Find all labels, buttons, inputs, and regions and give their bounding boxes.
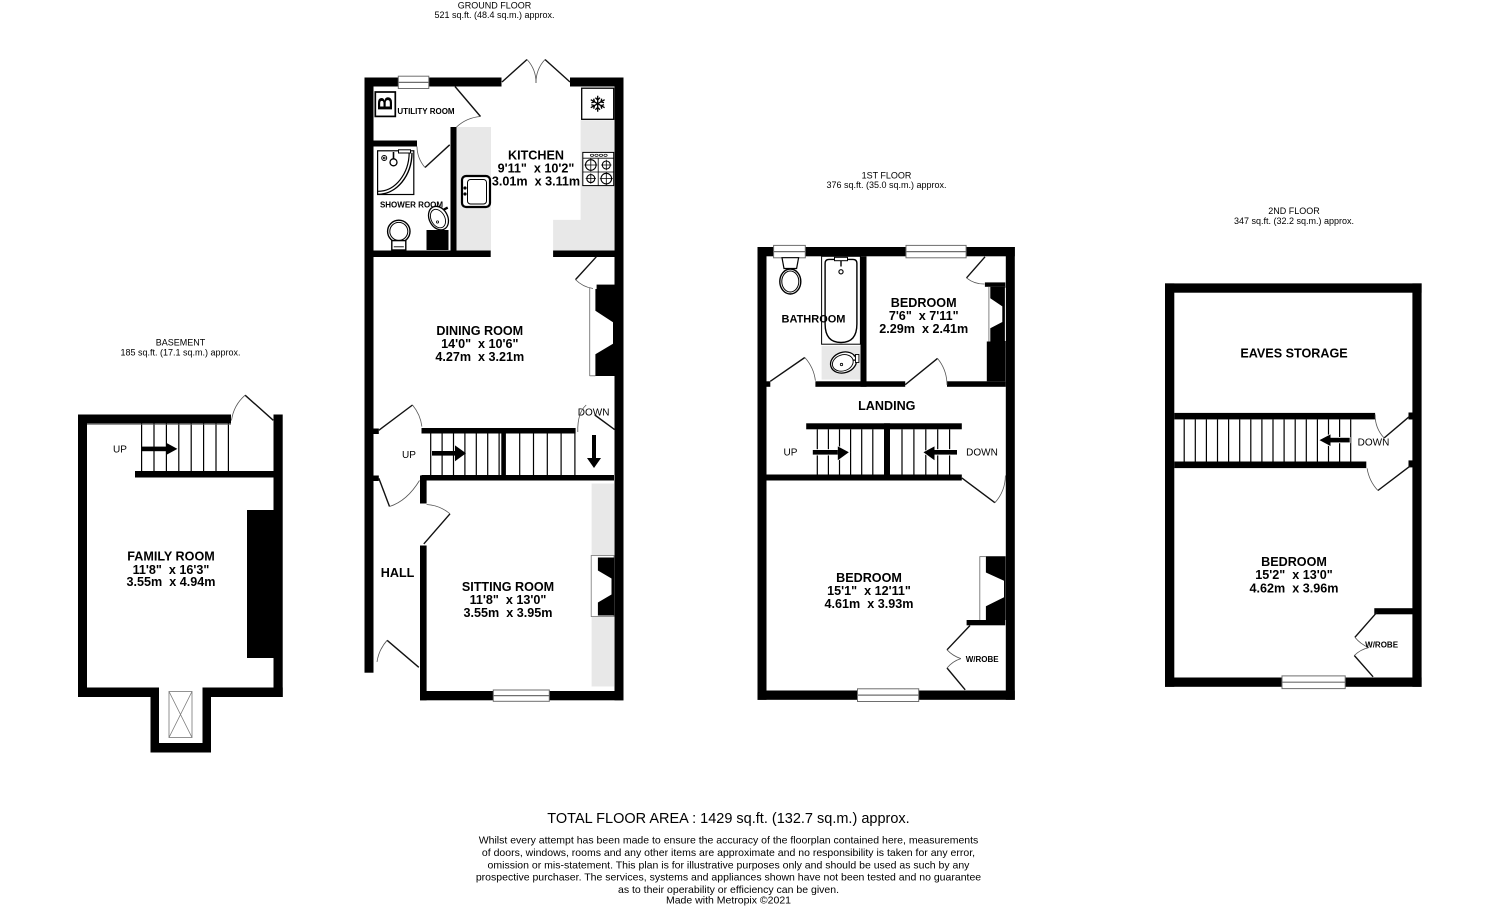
svg-text:BEDROOM: BEDROOM [891,296,957,310]
svg-text:4.62m x 3.96m: 4.62m x 3.96m [1250,582,1339,596]
svg-text:UP: UP [402,450,416,461]
svg-text:GROUND FLOOR: GROUND FLOOR [458,1,532,11]
svg-text:BASEMENT: BASEMENT [156,338,206,348]
svg-text:UTILITY ROOM: UTILITY ROOM [397,107,455,116]
svg-text:LANDING: LANDING [858,399,916,413]
svg-text:BEDROOM: BEDROOM [836,571,902,585]
svg-text:SITTING ROOM: SITTING ROOM [462,580,554,594]
svg-text:3.01m x 3.11m: 3.01m x 3.11m [492,175,580,189]
svg-text:W/ROBE: W/ROBE [1365,641,1399,650]
svg-text:EAVES STORAGE: EAVES STORAGE [1240,347,1347,361]
svg-text:BATHROOM: BATHROOM [782,314,846,326]
svg-text:2.29m x 2.41m: 2.29m x 2.41m [879,322,968,336]
svg-text:376 sq.ft. (35.0 sq.m.) approx: 376 sq.ft. (35.0 sq.m.) approx. [826,180,946,190]
svg-text:2ND FLOOR: 2ND FLOOR [1268,206,1320,216]
svg-text:KITCHEN: KITCHEN [508,149,564,163]
svg-text:185 sq.ft. (17.1 sq.m.) approx: 185 sq.ft. (17.1 sq.m.) approx. [120,348,240,358]
svg-text:UP: UP [784,448,798,459]
svg-text:14'0" x 10'6": 14'0" x 10'6" [441,337,518,351]
svg-text:7'6" x 7'11": 7'6" x 7'11" [889,309,959,323]
svg-text:B: B [375,96,397,110]
svg-text:4.61m x 3.93m: 4.61m x 3.93m [825,597,914,611]
svg-text:of doors, windows, rooms and a: of doors, windows, rooms and any other i… [482,847,975,859]
svg-text:DOWN: DOWN [1358,437,1390,448]
svg-text:DINING ROOM: DINING ROOM [436,324,523,338]
svg-text:HALL: HALL [381,566,415,580]
svg-text:1ST FLOOR: 1ST FLOOR [862,171,912,181]
svg-text:DOWN: DOWN [966,448,998,459]
svg-text:9'11" x 10'2": 9'11" x 10'2" [498,162,575,176]
svg-text:W/ROBE: W/ROBE [966,655,1000,664]
svg-text:347 sq.ft. (32.2 sq.m.) approx: 347 sq.ft. (32.2 sq.m.) approx. [1234,216,1354,226]
svg-text:TOTAL FLOOR AREA : 1429 sq.ft.: TOTAL FLOOR AREA : 1429 sq.ft. (132.7 sq… [547,811,909,827]
svg-text:Made with Metropix ©2021: Made with Metropix ©2021 [666,895,791,907]
svg-text:11'8" x 13'0": 11'8" x 13'0" [470,593,547,607]
svg-text:omission or mis-statement. Thi: omission or mis-statement. This plan is … [488,859,971,871]
svg-text:15'1" x 12'11": 15'1" x 12'11" [827,584,911,598]
svg-text:521 sq.ft. (48.4 sq.m.) approx: 521 sq.ft. (48.4 sq.m.) approx. [434,10,554,20]
svg-text:15'2" x 13'0": 15'2" x 13'0" [1255,568,1332,582]
svg-text:3.55m x 3.95m: 3.55m x 3.95m [464,606,553,620]
svg-text:3.55m x 4.94m: 3.55m x 4.94m [127,575,216,589]
svg-text:UP: UP [113,444,127,455]
svg-text:FAMILY ROOM: FAMILY ROOM [127,550,214,564]
svg-text:BEDROOM: BEDROOM [1261,555,1327,569]
svg-text:Whilst every attempt has been: Whilst every attempt has been made to en… [479,835,979,847]
svg-text:4.27m x 3.21m: 4.27m x 3.21m [435,350,524,364]
svg-text:prospective purchaser. The ser: prospective purchaser. The services, sys… [476,872,981,884]
